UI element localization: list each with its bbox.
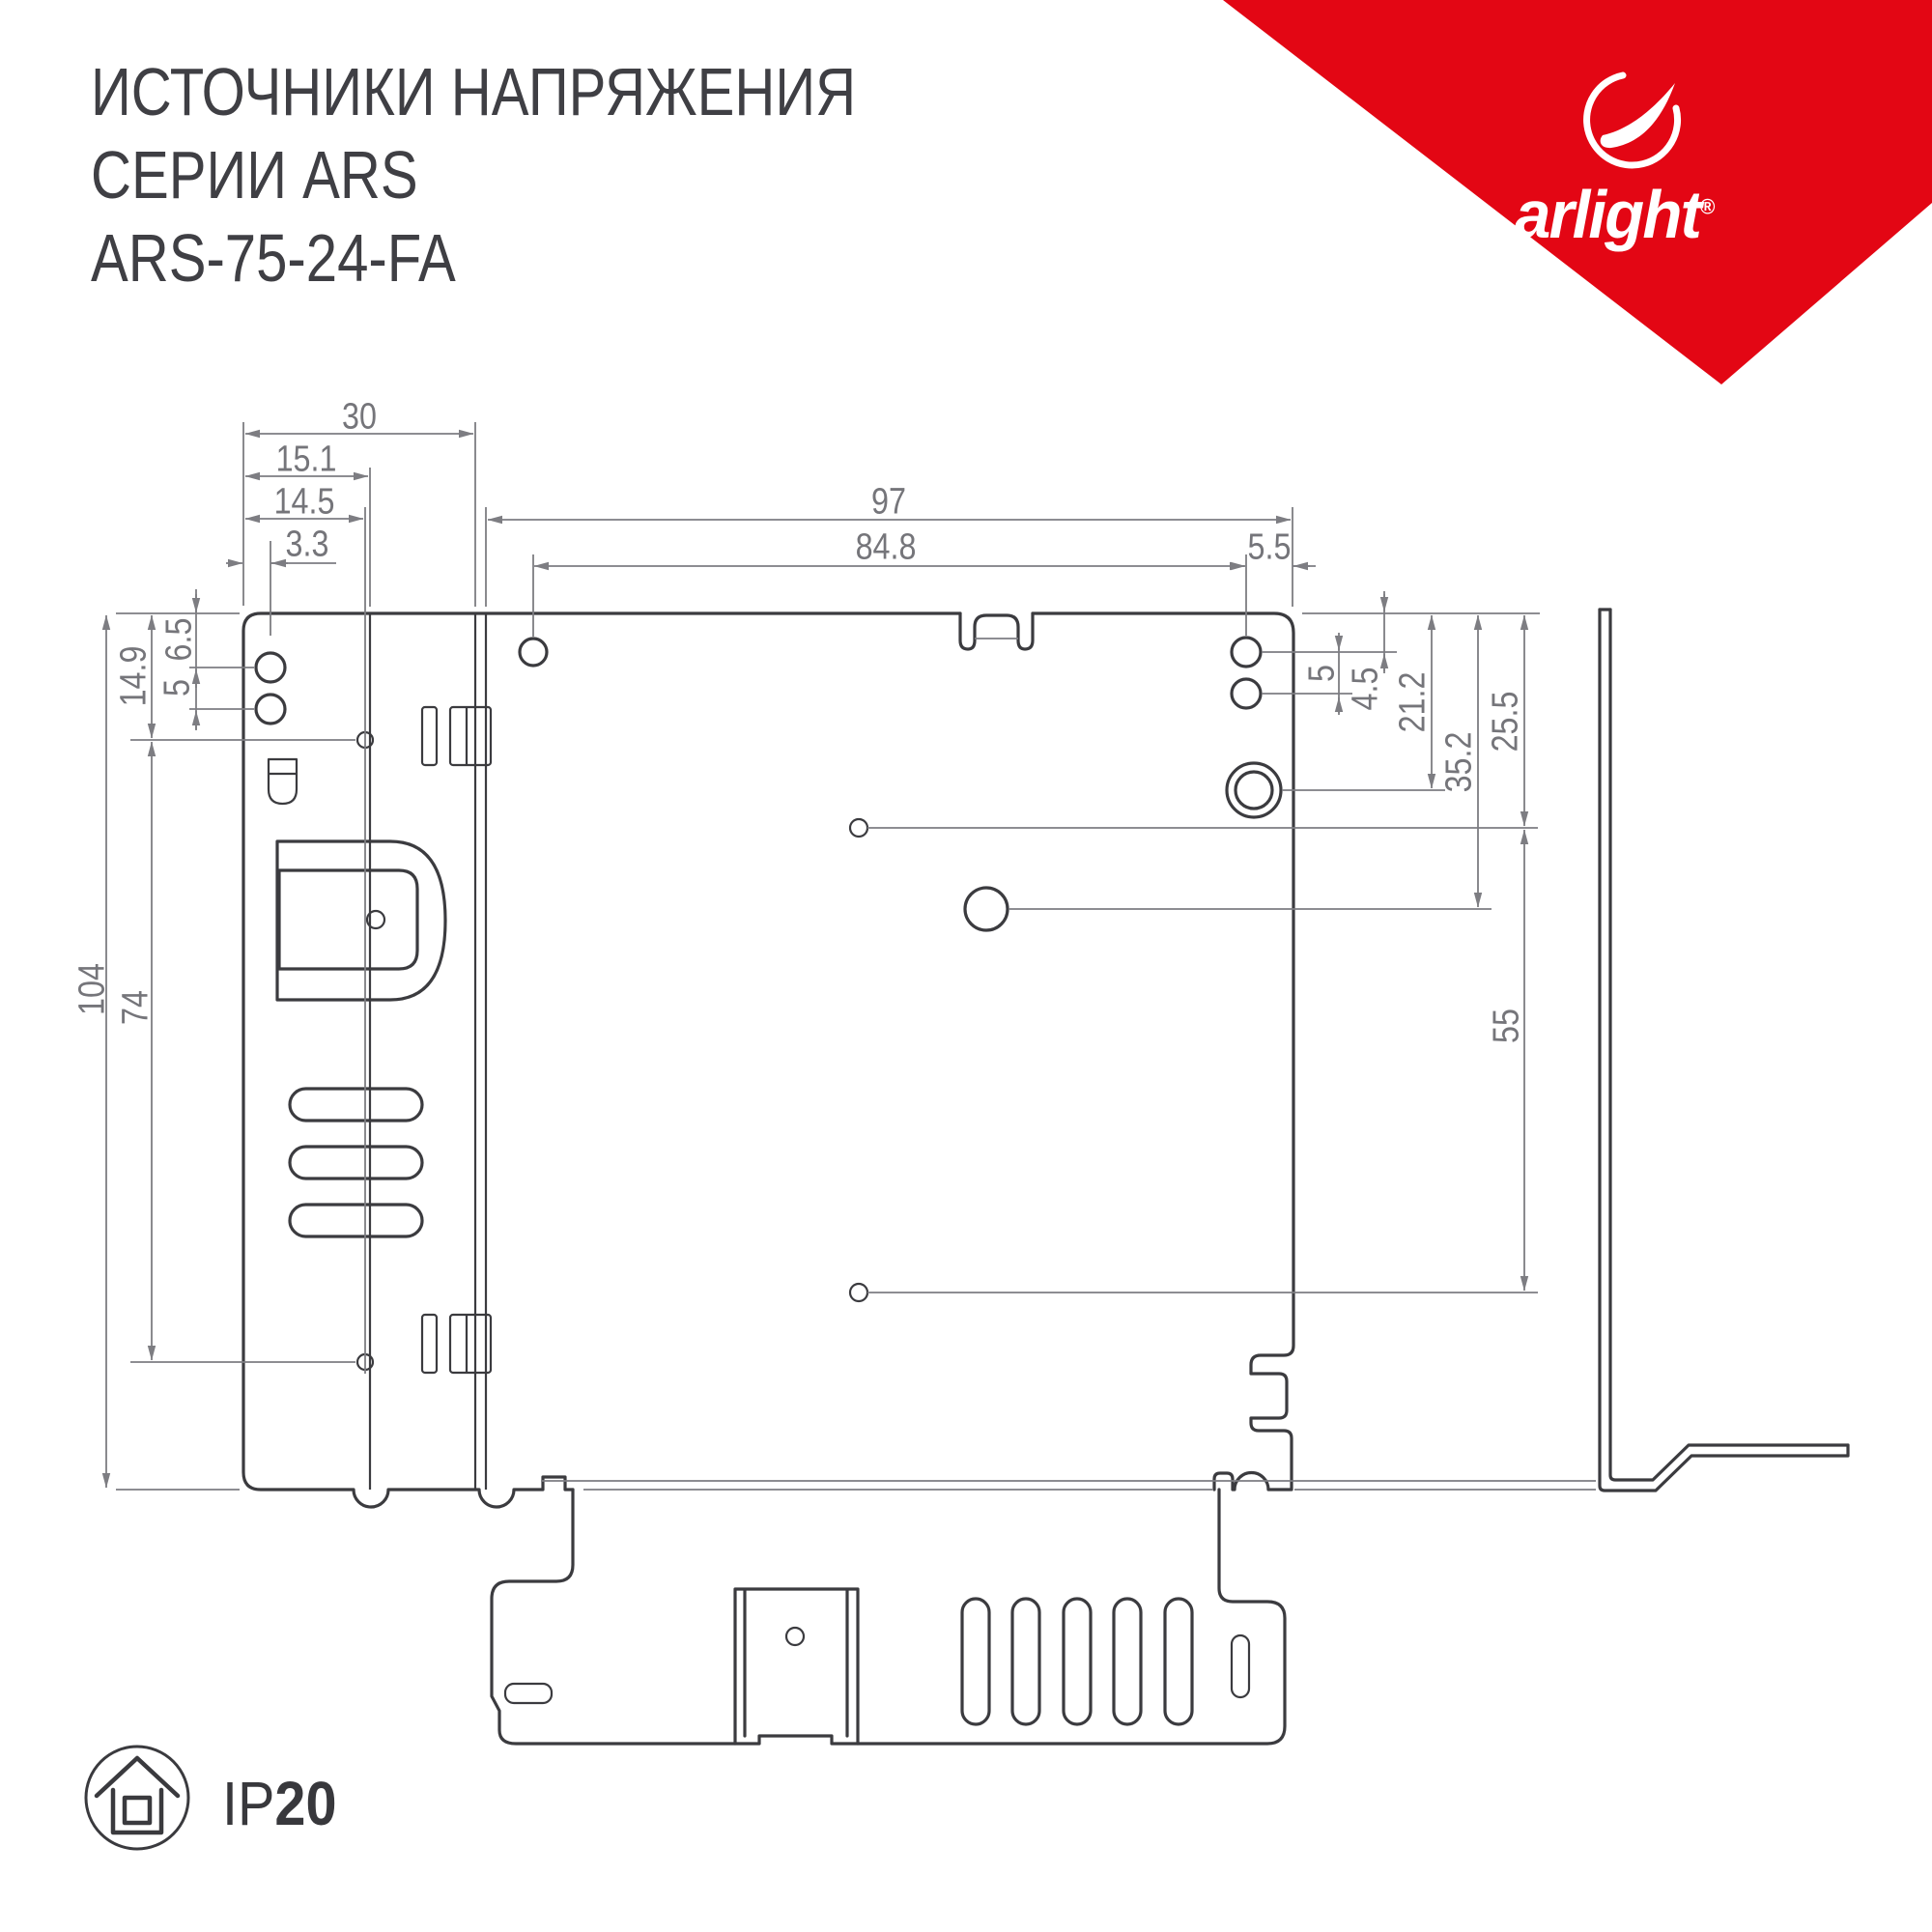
top-view [243,613,1293,1507]
small-slot [505,1684,552,1703]
small-slot [1232,1635,1249,1697]
mounting-hole [256,695,285,724]
front-vent-slots [962,1599,1192,1724]
dim-104: 104 [72,963,114,1015]
ip-label: IP [222,1769,274,1838]
dim-4-5: 4.5 [1346,668,1387,711]
bottom-view [492,1490,1285,1744]
ac-connector-outer [277,841,445,1000]
output-connector [735,1589,858,1744]
grommet-hole-inner [1236,772,1272,809]
ip-rating: IP20 [222,1768,336,1839]
dim-5-right: 5 [1302,665,1344,682]
mounting-hole [1232,638,1261,667]
extension-lines [116,422,1596,1490]
technical-drawing [0,0,1932,1932]
small-hole [850,1284,867,1301]
dimension-lines [106,434,1524,1488]
dim-21-2: 21.2 [1393,672,1435,733]
dim-55: 55 [1487,1009,1528,1043]
dim-84-8: 84.8 [856,527,917,569]
dim-14-5: 14.5 [274,482,335,524]
ip-value: 20 [274,1769,336,1838]
mounting-hole [1232,679,1261,708]
dim-30: 30 [342,397,377,439]
side-view [1600,610,1848,1491]
mounting-hole [965,888,1008,930]
small-hole [850,819,867,837]
dim-3-3: 3.3 [286,525,329,566]
dim-15-1: 15.1 [276,440,337,481]
dim-35-2: 35.2 [1439,732,1481,793]
dim-6-5: 6.5 [159,618,201,662]
side-vent-slots [422,707,491,1373]
dim-74: 74 [116,990,157,1025]
dim-5-5: 5.5 [1248,527,1292,569]
vent-slots [290,1089,422,1236]
ac-connector-inner [279,870,417,969]
dim-5-left: 5 [157,679,199,696]
dim-97: 97 [871,482,906,524]
mounting-hole [520,639,547,666]
dim-14-9: 14.9 [114,646,156,707]
page: arlight® ИСТОЧНИКИ НАПРЯЖЕНИЯ СЕРИИ ARS … [0,0,1932,1932]
fuse-clip [269,759,297,804]
mounting-hole [256,653,285,682]
dim-25-5: 25.5 [1486,692,1527,753]
